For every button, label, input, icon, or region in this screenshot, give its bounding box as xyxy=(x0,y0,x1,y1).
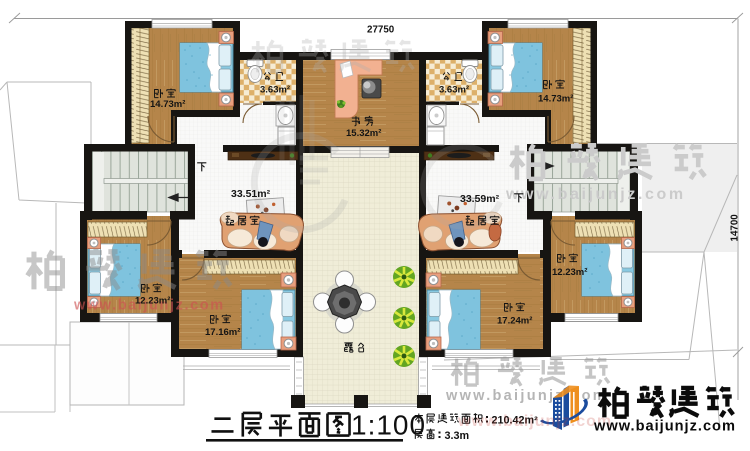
svg-text:14.73m²: 14.73m² xyxy=(150,99,185,110)
svg-text:14700: 14700 xyxy=(730,214,741,242)
svg-text:3.63m²: 3.63m² xyxy=(439,85,469,96)
svg-text:14.73m²: 14.73m² xyxy=(538,94,573,105)
svg-text:12.23m²: 12.23m² xyxy=(135,296,170,307)
svg-text:www.baijunjz.com: www.baijunjz.com xyxy=(445,388,608,404)
svg-text:33.59m²: 33.59m² xyxy=(460,193,500,205)
svg-text:www.baijunjz.com: www.baijunjz.com xyxy=(593,419,736,435)
svg-text:12.23m²: 12.23m² xyxy=(552,267,587,278)
svg-text:27750: 27750 xyxy=(367,25,395,36)
svg-text:17.24m²: 17.24m² xyxy=(497,316,532,327)
svg-text:33.51m²: 33.51m² xyxy=(231,188,271,200)
svg-text:www.baijunjz.com: www.baijunjz.com xyxy=(505,186,686,203)
svg-text:15.32m²: 15.32m² xyxy=(346,128,381,139)
svg-text:17.16m²: 17.16m² xyxy=(205,327,240,338)
svg-text:www.baijunjz.com: www.baijunjz.com xyxy=(457,413,612,430)
svg-text:3.63m²: 3.63m² xyxy=(260,85,290,96)
svg-text:3.3m: 3.3m xyxy=(445,430,470,442)
